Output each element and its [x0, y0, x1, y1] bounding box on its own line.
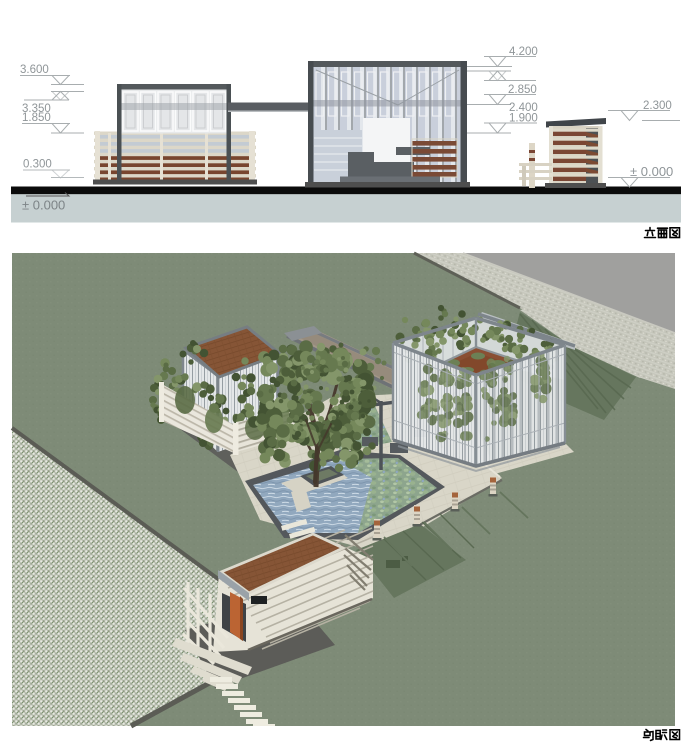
svg-text:± 0.000: ± 0.000: [22, 198, 65, 213]
svg-text:± 0.000: ± 0.000: [630, 164, 673, 179]
svg-text:1.850: 1.850: [22, 112, 51, 124]
svg-text:0.300: 0.300: [23, 159, 52, 171]
svg-text:3.600: 3.600: [20, 64, 49, 76]
